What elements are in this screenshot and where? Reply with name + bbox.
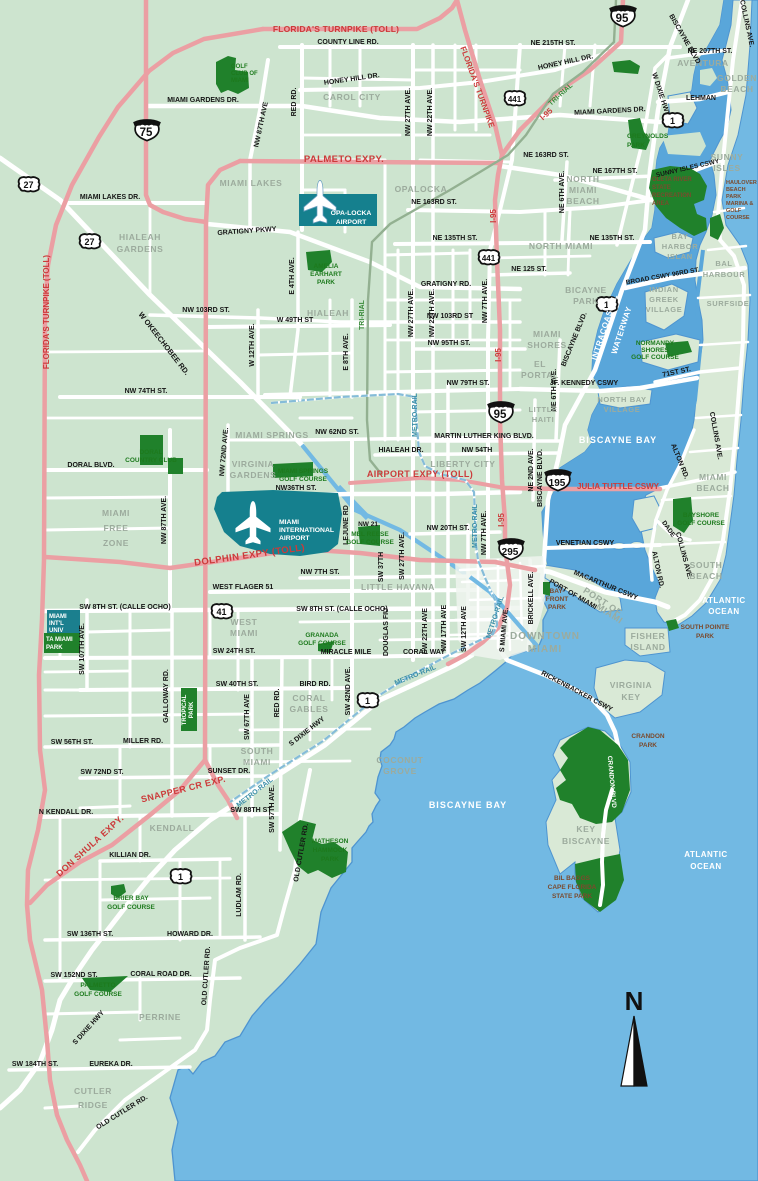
svg-text:RIDGE: RIDGE	[78, 1100, 108, 1110]
svg-text:PARK: PARK	[696, 633, 714, 640]
svg-text:LIBERTY CITY: LIBERTY CITY	[430, 459, 495, 469]
svg-text:NORTH MIAMI: NORTH MIAMI	[529, 241, 593, 251]
svg-text:AIRPORT: AIRPORT	[279, 535, 310, 542]
svg-text:75: 75	[140, 127, 153, 139]
svg-text:NE 135TH ST.: NE 135TH ST.	[433, 235, 478, 242]
svg-text:BEACH: BEACH	[726, 187, 746, 193]
svg-text:EUREKA DR.: EUREKA DR.	[89, 1061, 132, 1068]
svg-text:GOLF COURSE: GOLF COURSE	[631, 354, 679, 361]
svg-text:SW 57TH AVE.: SW 57TH AVE.	[269, 785, 276, 833]
svg-text:BAY: BAY	[672, 232, 689, 241]
svg-text:COCONUT: COCONUT	[376, 755, 423, 765]
svg-text:MIAMI: MIAMI	[528, 644, 562, 655]
svg-text:GOLF COURSE: GOLF COURSE	[346, 539, 394, 546]
svg-text:KEY: KEY	[621, 692, 640, 702]
svg-text:ATLANTIC: ATLANTIC	[702, 596, 745, 605]
svg-text:GOLF: GOLF	[726, 208, 742, 214]
svg-text:CAROL CITY: CAROL CITY	[323, 92, 381, 102]
svg-text:PARK: PARK	[46, 645, 63, 651]
svg-text:GREEK: GREEK	[649, 295, 679, 304]
svg-text:MIAMI LAKES: MIAMI LAKES	[220, 178, 283, 188]
svg-text:CLUB OF: CLUB OF	[231, 71, 258, 77]
svg-text:MIAMI: MIAMI	[569, 185, 597, 195]
svg-text:SW 107TH AVE.: SW 107TH AVE.	[79, 623, 86, 675]
svg-text:VILLAGE: VILLAGE	[646, 305, 683, 314]
svg-text:COURSE: COURSE	[726, 215, 750, 221]
svg-text:NW 22TH AVE.: NW 22TH AVE.	[427, 88, 434, 136]
svg-text:NW 27TH AVE.: NW 27TH AVE.	[408, 289, 415, 337]
svg-text:JF. KENNEDY CSWY: JF. KENNEDY CSWY	[550, 380, 619, 387]
svg-text:GOLF COURSE: GOLF COURSE	[298, 640, 346, 647]
svg-text:SHORES: SHORES	[527, 340, 567, 350]
svg-text:NW 7TH AVE.: NW 7TH AVE.	[481, 511, 488, 555]
svg-text:NE 135TH ST.: NE 135TH ST.	[590, 235, 635, 242]
svg-text:PARK: PARK	[726, 194, 741, 200]
svg-text:CORAL ROAD DR.: CORAL ROAD DR.	[130, 971, 191, 978]
svg-text:41: 41	[216, 607, 226, 617]
svg-text:BEACH: BEACH	[696, 483, 729, 493]
svg-text:SUNNY: SUNNY	[711, 152, 744, 162]
svg-text:BRICKELL AVE.: BRICKELL AVE.	[528, 572, 535, 625]
svg-text:HAITI: HAITI	[532, 415, 555, 424]
svg-text:INDIAN: INDIAN	[649, 285, 678, 294]
svg-text:I-95: I-95	[497, 513, 506, 527]
svg-text:27: 27	[23, 180, 33, 190]
svg-text:NW 17TH AVE: NW 17TH AVE	[441, 605, 448, 652]
svg-text:NW 54TH: NW 54TH	[462, 447, 493, 454]
svg-text:GOLF COURSE: GOLF COURSE	[107, 904, 155, 911]
svg-text:NW 20TH ST.: NW 20TH ST.	[427, 525, 470, 532]
svg-text:GARDENS: GARDENS	[230, 470, 277, 480]
svg-text:PERRINE: PERRINE	[139, 1012, 181, 1022]
svg-text:MIAMI: MIAMI	[49, 614, 67, 620]
svg-text:NE 215TH ST.: NE 215TH ST.	[531, 40, 576, 47]
svg-text:AMELIA: AMELIA	[314, 263, 339, 270]
svg-text:SW 40TH ST.: SW 40TH ST.	[216, 681, 258, 688]
svg-text:441: 441	[482, 254, 496, 263]
svg-text:295: 295	[502, 547, 519, 558]
svg-text:GABLES: GABLES	[289, 704, 328, 714]
svg-text:SW 22TH AVE: SW 22TH AVE	[422, 608, 429, 654]
svg-text:GOLDEN: GOLDEN	[717, 73, 757, 83]
svg-text:I-95: I-95	[489, 209, 498, 223]
svg-text:NW 87TH AVE.: NW 87TH AVE.	[161, 496, 168, 544]
svg-text:SW 88TH ST: SW 88TH ST	[230, 807, 272, 814]
svg-text:HIALEAH: HIALEAH	[307, 308, 349, 318]
svg-text:BAY-: BAY-	[550, 588, 565, 595]
svg-text:BISCAYNE BAY: BISCAYNE BAY	[579, 435, 657, 445]
svg-text:E 8TH AVE.: E 8TH AVE.	[343, 333, 350, 370]
svg-text:N: N	[625, 986, 644, 1016]
svg-text:AREA: AREA	[652, 201, 670, 207]
svg-text:HAMMOCK: HAMMOCK	[313, 847, 348, 854]
svg-text:KEY: KEY	[576, 824, 595, 834]
svg-text:CRANDON: CRANDON	[631, 733, 665, 740]
svg-text:SW 8TH ST. (CALLE OCHO): SW 8TH ST. (CALLE OCHO)	[79, 604, 170, 611]
svg-text:GALLOWAY RD.: GALLOWAY RD.	[163, 669, 170, 723]
svg-text:NW 7TH AVE.: NW 7TH AVE.	[482, 279, 489, 323]
svg-text:BRIER BAY: BRIER BAY	[113, 895, 149, 902]
svg-text:LUDLAM RD.: LUDLAM RD.	[236, 873, 243, 917]
svg-text:SHORES: SHORES	[641, 347, 669, 354]
svg-text:SW 42ND AVE.: SW 42ND AVE.	[345, 667, 352, 716]
svg-text:BIL BAGGS: BIL BAGGS	[554, 875, 591, 882]
svg-text:195: 195	[549, 478, 566, 489]
svg-text:CORAL WAY: CORAL WAY	[403, 649, 445, 656]
svg-text:EARHART: EARHART	[310, 271, 342, 278]
svg-text:HOWARD DR.: HOWARD DR.	[167, 931, 213, 938]
svg-text:PORTAL: PORTAL	[521, 370, 559, 380]
svg-text:STATE: STATE	[652, 185, 671, 191]
svg-text:BAYSHORE: BAYSHORE	[683, 512, 720, 519]
svg-text:LITTLE HAVANA: LITTLE HAVANA	[361, 582, 435, 592]
svg-text:HAULOVER: HAULOVER	[726, 180, 757, 186]
svg-text:VIRGINIA: VIRGINIA	[610, 680, 653, 690]
svg-text:NW 103RD ST.: NW 103RD ST.	[182, 307, 230, 314]
svg-text:METRO-RAIL: METRO-RAIL	[412, 392, 419, 437]
svg-text:OPA-LOCKA: OPA-LOCKA	[331, 210, 372, 217]
svg-text:MIAMI: MIAMI	[243, 757, 271, 767]
svg-text:EL: EL	[534, 359, 546, 369]
svg-text:INTERNATIONAL: INTERNATIONAL	[279, 527, 334, 534]
svg-text:KILLIAN DR.: KILLIAN DR.	[109, 852, 151, 859]
svg-text:1: 1	[178, 872, 183, 882]
svg-text:MIAMI SPRINGS: MIAMI SPRINGS	[235, 430, 308, 440]
svg-text:MATHESON: MATHESON	[312, 838, 349, 845]
svg-text:HIALEAH: HIALEAH	[119, 232, 161, 242]
svg-text:COUNTRY CLUB: COUNTRY CLUB	[125, 457, 177, 464]
svg-text:GREYNOLDS: GREYNOLDS	[627, 133, 669, 140]
svg-text:NE 163RD ST.: NE 163RD ST.	[411, 199, 457, 206]
svg-text:DORAL BLVD.: DORAL BLVD.	[67, 462, 114, 469]
svg-text:GOLF COURSE: GOLF COURSE	[279, 476, 327, 483]
svg-text:WEST FLAGER 51: WEST FLAGER 51	[213, 584, 274, 591]
svg-text:HIALEAH DR.: HIALEAH DR.	[378, 447, 423, 454]
svg-text:PARK: PARK	[317, 279, 335, 286]
svg-text:SOUTH: SOUTH	[241, 746, 274, 756]
svg-text:PARK: PARK	[573, 296, 599, 306]
svg-text:SW 12TH AVE: SW 12TH AVE	[461, 606, 468, 652]
svg-text:NW 27TH AVE.: NW 27TH AVE.	[405, 88, 412, 136]
svg-text:NW 7TH ST.: NW 7TH ST.	[301, 569, 340, 576]
svg-text:95: 95	[616, 13, 629, 25]
svg-text:LITTLE: LITTLE	[528, 405, 557, 414]
svg-text:UNIV: UNIV	[49, 628, 63, 634]
svg-text:SW 24TH ST.: SW 24TH ST.	[213, 648, 255, 655]
svg-text:TRI-RIAL: TRI-RIAL	[359, 299, 366, 330]
svg-text:ISLES: ISLES	[713, 163, 741, 173]
svg-text:ATLANTIC: ATLANTIC	[684, 850, 727, 859]
svg-text:WEST: WEST	[231, 617, 258, 627]
svg-text:BISCAYNE BAY: BISCAYNE BAY	[429, 800, 507, 810]
svg-text:BEACH: BEACH	[720, 84, 753, 94]
svg-text:NW 103RD ST: NW 103RD ST	[427, 313, 474, 320]
svg-text:BIRD RD.: BIRD RD.	[299, 681, 330, 688]
svg-text:CAPE FLORIDA: CAPE FLORIDA	[548, 884, 597, 891]
svg-text:SW 27TH AVE.: SW 27TH AVE.	[399, 532, 406, 580]
svg-text:STATE PARK: STATE PARK	[552, 893, 592, 900]
svg-text:BAL: BAL	[715, 259, 732, 268]
svg-text:MIAMI: MIAMI	[231, 78, 249, 84]
svg-text:ISLAN: ISLAN	[667, 252, 693, 261]
svg-text:NE 125 ST.: NE 125 ST.	[511, 266, 546, 273]
svg-text:1: 1	[365, 696, 370, 706]
svg-text:GARDENS: GARDENS	[117, 244, 164, 254]
svg-text:RED RD.: RED RD.	[274, 689, 281, 718]
svg-text:AVENTURA: AVENTURA	[677, 58, 728, 68]
svg-text:95: 95	[494, 409, 507, 421]
svg-text:RECREATION: RECREATION	[652, 193, 691, 199]
svg-text:GOLF: GOLF	[231, 64, 248, 70]
svg-text:BISCAYNE BLVD.: BISCAYNE BLVD.	[537, 449, 544, 507]
svg-text:NORMANDY: NORMANDY	[636, 340, 675, 347]
svg-text:VENETIAN CSWY: VENETIAN CSWY	[556, 540, 615, 547]
svg-text:NW 95TH ST.: NW 95TH ST.	[428, 340, 471, 347]
svg-text:VILLAGE: VILLAGE	[604, 405, 641, 414]
svg-text:NW 21: NW 21	[358, 521, 378, 528]
svg-text:DORAL: DORAL	[139, 449, 162, 456]
svg-text:E 4TH AVE.: E 4TH AVE.	[289, 257, 296, 294]
svg-text:1: 1	[670, 116, 675, 126]
svg-text:SUNSET DR.: SUNSET DR.	[208, 768, 250, 775]
svg-text:MIAMI: MIAMI	[699, 472, 727, 482]
svg-text:NORTH BAY: NORTH BAY	[597, 395, 646, 404]
svg-text:PARK: PARK	[548, 604, 566, 611]
svg-text:DOUGLAS FIU: DOUGLAS FIU	[383, 608, 390, 656]
svg-text:CORAL: CORAL	[292, 693, 325, 703]
svg-text:MIAMI: MIAMI	[230, 628, 258, 638]
svg-text:NE 167TH ST.: NE 167TH ST.	[593, 168, 638, 175]
svg-text:ZONE: ZONE	[103, 538, 129, 548]
svg-text:LEHMAN: LEHMAN	[686, 95, 716, 102]
svg-text:GRATIGNY RD.: GRATIGNY RD.	[421, 281, 471, 288]
svg-text:METRO-RAIL: METRO-RAIL	[472, 503, 479, 548]
svg-text:BISCAYNE: BISCAYNE	[562, 836, 610, 846]
svg-text:N KENDALL DR.: N KENDALL DR.	[39, 809, 93, 816]
svg-text:INT'L: INT'L	[49, 621, 64, 627]
svg-text:OPALOCKA: OPALOCKA	[395, 184, 448, 194]
svg-text:TROPICAL: TROPICAL	[182, 694, 188, 725]
svg-text:SW 136TH ST.: SW 136TH ST.	[67, 931, 113, 938]
svg-text:HARBOUR: HARBOUR	[703, 270, 746, 279]
svg-text:COUNTY LINE RD.: COUNTY LINE RD.	[317, 39, 378, 46]
svg-text:NW 79TH ST.: NW 79TH ST.	[447, 380, 490, 387]
svg-text:SW 56TH ST.: SW 56TH ST.	[51, 739, 93, 746]
svg-text:BICAYNE: BICAYNE	[565, 285, 607, 295]
svg-text:SW 152ND ST.: SW 152ND ST.	[50, 972, 97, 979]
svg-text:SOUTH POINTE: SOUTH POINTE	[681, 624, 730, 631]
svg-text:27: 27	[84, 237, 94, 247]
svg-text:GROVE: GROVE	[383, 766, 417, 776]
svg-text:SW 37TH: SW 37TH	[378, 552, 385, 582]
svg-text:MARINA &: MARINA &	[726, 201, 753, 207]
svg-text:FRONT: FRONT	[546, 596, 568, 603]
svg-text:JULIA TUTTLE CSWY: JULIA TUTTLE CSWY	[577, 482, 660, 491]
svg-text:PARK: PARK	[189, 701, 195, 718]
svg-text:MEL REESE: MEL REESE	[351, 531, 389, 538]
svg-text:NORTH: NORTH	[566, 174, 599, 184]
svg-text:MIAMI GARDENS DR.: MIAMI GARDENS DR.	[167, 97, 239, 104]
svg-text:NE 163RD ST.: NE 163RD ST.	[523, 152, 569, 159]
svg-text:441: 441	[508, 95, 522, 104]
svg-text:SW 184TH ST.: SW 184TH ST.	[12, 1061, 58, 1068]
svg-text:TA MIAMI: TA MIAMI	[46, 637, 73, 643]
svg-text:W 12TH AVE.: W 12TH AVE.	[249, 323, 256, 366]
svg-text:SOUTH: SOUTH	[690, 560, 723, 570]
svg-text:NE 2ND AVE.: NE 2ND AVE.	[528, 448, 535, 491]
svg-text:MIAMI: MIAMI	[102, 508, 130, 518]
svg-text:MIAMI: MIAMI	[279, 519, 299, 526]
svg-text:KENDALL: KENDALL	[150, 823, 195, 833]
svg-text:BEACH: BEACH	[689, 571, 722, 581]
svg-text:PALMETO EXPY.: PALMETO EXPY.	[304, 154, 384, 165]
svg-text:FREE: FREE	[103, 523, 128, 533]
svg-text:GRANADA: GRANADA	[305, 632, 339, 639]
svg-text:CUTLER: CUTLER	[74, 1086, 112, 1096]
svg-text:MIAMI SPRINGS: MIAMI SPRINGS	[278, 468, 329, 475]
svg-text:OCEAN: OCEAN	[690, 862, 721, 871]
svg-text:NE 6TH AVE.: NE 6TH AVE.	[559, 171, 566, 213]
svg-text:SW 8TH ST. (CALLE OCHO): SW 8TH ST. (CALLE OCHO)	[296, 606, 387, 613]
svg-text:W 49TH ST: W 49TH ST	[277, 317, 314, 324]
svg-text:FLORIDA'S TURNPIKE (TOLL): FLORIDA'S TURNPIKE (TOLL)	[273, 24, 399, 34]
svg-text:MIRACLE MILE: MIRACLE MILE	[321, 649, 372, 656]
svg-text:OCEAN: OCEAN	[708, 607, 739, 616]
svg-text:PALMETTO: PALMETTO	[80, 982, 115, 989]
svg-text:BEACH: BEACH	[566, 196, 599, 206]
svg-text:NW 62ND ST.: NW 62ND ST.	[315, 429, 359, 436]
svg-text:FLORIDA'S TURNPIKE (TOLL): FLORIDA'S TURNPIKE (TOLL)	[42, 255, 51, 370]
svg-text:PARK: PARK	[321, 856, 339, 863]
svg-text:PARK: PARK	[627, 142, 645, 149]
svg-text:ISLAND: ISLAND	[630, 642, 665, 652]
svg-text:NW 74TH ST.: NW 74TH ST.	[125, 388, 168, 395]
svg-text:SW 72ND ST.: SW 72ND ST.	[80, 769, 123, 776]
svg-text:GOLF COURSE: GOLF COURSE	[677, 520, 725, 527]
svg-text:DOWNTOWN: DOWNTOWN	[510, 631, 580, 642]
svg-text:AIRPORT EXPY (TOLL): AIRPORT EXPY (TOLL)	[367, 469, 473, 479]
svg-text:PARK: PARK	[639, 742, 657, 749]
svg-text:MIAMI: MIAMI	[533, 329, 561, 339]
svg-text:MILLER RD.: MILLER RD.	[123, 738, 163, 745]
svg-text:SW 67TH AVE: SW 67TH AVE	[244, 694, 251, 740]
svg-text:FISHER: FISHER	[631, 631, 666, 641]
svg-text:OLETA RIVER: OLETA RIVER	[652, 177, 692, 183]
svg-text:NW36TH ST.: NW36TH ST.	[276, 485, 317, 492]
svg-text:I-95: I-95	[494, 348, 503, 362]
svg-text:VIRGINIA: VIRGINIA	[232, 459, 275, 469]
svg-text:HARBOR: HARBOR	[662, 242, 699, 251]
svg-text:MIAMI LAKES DR.: MIAMI LAKES DR.	[80, 194, 140, 201]
svg-text:RED RD.: RED RD.	[291, 88, 298, 117]
svg-text:SURFSIDE: SURFSIDE	[707, 299, 750, 308]
svg-text:MARTIN LUTHER KING BLVD.: MARTIN LUTHER KING BLVD.	[434, 433, 533, 440]
svg-text:AIRPORT: AIRPORT	[336, 219, 367, 226]
svg-text:GOLF COURSE: GOLF COURSE	[74, 991, 122, 998]
